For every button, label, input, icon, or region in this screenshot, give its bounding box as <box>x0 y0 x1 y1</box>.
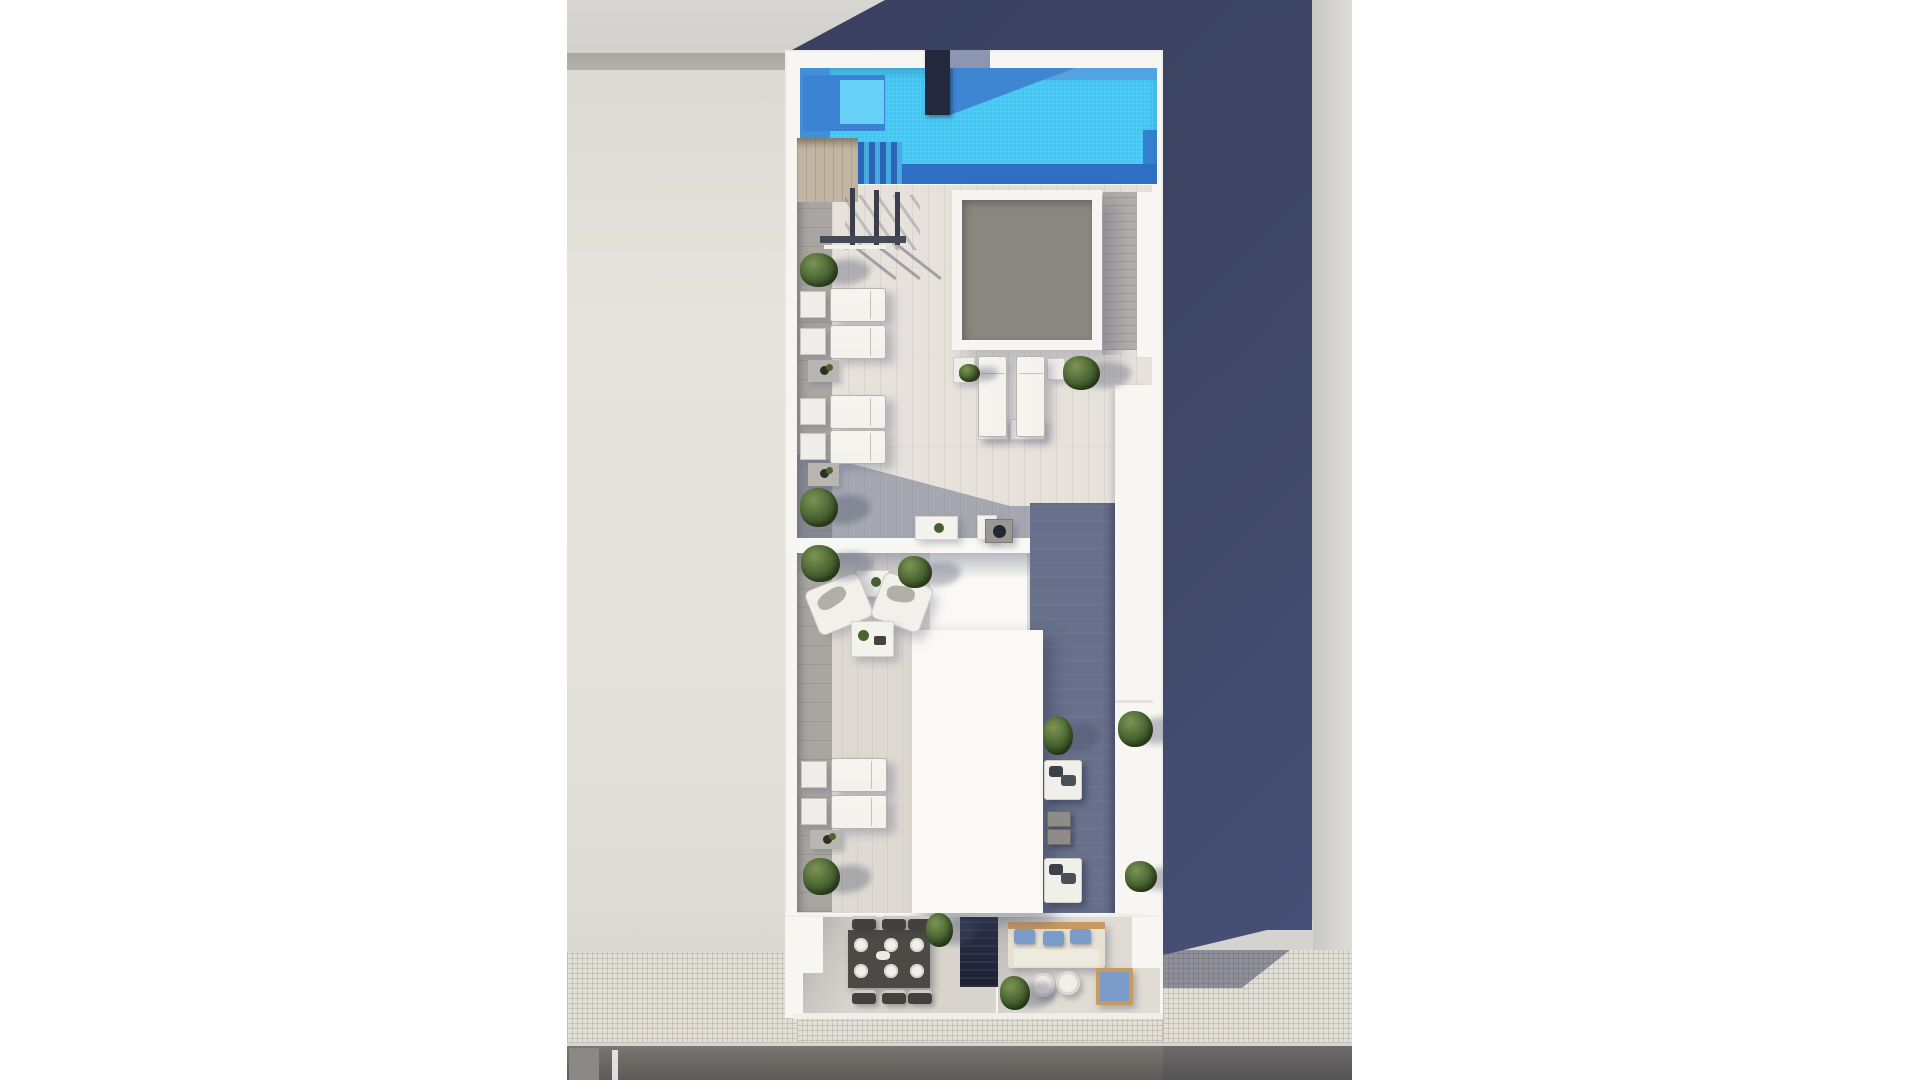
roof-block <box>912 630 1043 913</box>
dining-table <box>848 930 930 988</box>
right-parapet-wall <box>1115 385 1153 913</box>
table-centerpiece <box>876 951 890 960</box>
stairwell-skylight <box>960 915 998 987</box>
balcony-gap-walkway <box>962 987 996 1015</box>
parapet-strip <box>1137 192 1153 357</box>
gray-slat-wall <box>1103 192 1137 350</box>
neighbor-building-wall <box>567 68 797 952</box>
street-front-wall <box>793 1013 1163 1019</box>
sidewalk-left <box>567 952 797 1044</box>
coffee-table <box>851 621 894 657</box>
dining-balcony-wall <box>793 913 823 973</box>
pool-column <box>925 50 950 115</box>
skylight <box>952 190 1102 350</box>
glass-fence <box>820 236 906 243</box>
wood-frame-lounge-chair <box>1096 968 1133 1005</box>
pool-right-shadow <box>1143 130 1157 184</box>
divider-cast-shadow <box>797 553 1030 579</box>
neighbor-wall-edge-band <box>567 53 788 70</box>
road-shadow-tint <box>1163 1046 1352 1080</box>
pool-steps <box>858 142 902 184</box>
timber-pool-deck <box>797 138 858 202</box>
lounge-balcony-wall <box>1132 915 1163 968</box>
fence-rail <box>824 245 886 249</box>
parapet-joint <box>1115 700 1153 703</box>
far-right-wall <box>1312 0 1352 952</box>
pool-column-shadow-cap <box>950 50 990 68</box>
barbecue-grill <box>985 519 1013 543</box>
road-lane-marking <box>612 1050 618 1080</box>
road-patch <box>569 1048 599 1080</box>
aerial-render-scene: Aerial 3D architectural render: rooftop … <box>0 0 1920 1080</box>
pool-bench-seat <box>840 80 884 124</box>
sofa <box>1008 922 1105 968</box>
pool-deep-strip <box>858 164 1157 184</box>
